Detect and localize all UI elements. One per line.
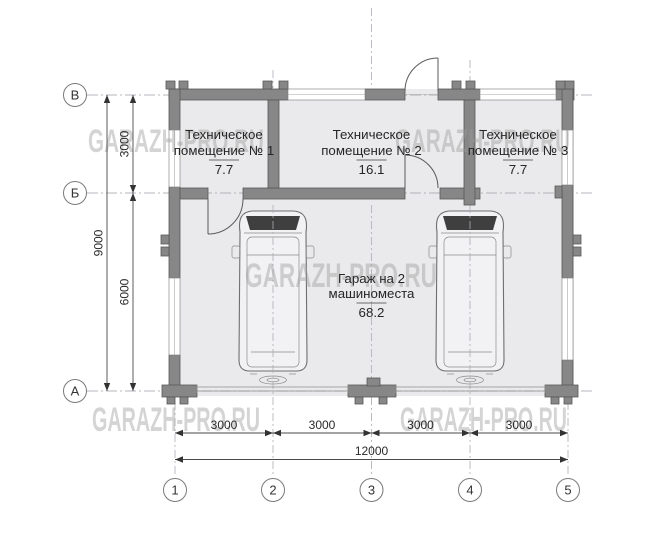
floor-plan-page: GARAZH-PRO.RU GARAZH-PRO.RU GARAZH-PRO.R… bbox=[0, 0, 661, 560]
room-tech2-area: 16.1 bbox=[359, 162, 385, 177]
grid-marker-col-5-label: 5 bbox=[564, 483, 571, 498]
wall-right-2 bbox=[562, 185, 573, 278]
dim-bottom-seg4-label: 3000 bbox=[506, 418, 533, 432]
dim-bottom-seg1-label: 3000 bbox=[211, 418, 238, 432]
room-garage-name-line2: машиноместа bbox=[329, 286, 415, 301]
grid-marker-row-v-label: В bbox=[71, 88, 80, 103]
wall-top-2 bbox=[365, 89, 405, 100]
grid-marker-col-3-label: 3 bbox=[368, 483, 375, 498]
grid-marker-col-1-label: 1 bbox=[171, 483, 178, 498]
wall-b-2 bbox=[243, 188, 405, 199]
dim-left-bottom-label: 6000 bbox=[118, 278, 132, 305]
room-tech1-area: 7.7 bbox=[215, 162, 234, 177]
grid-marker-col-3: 3 bbox=[360, 479, 383, 502]
dim-bottom-seg2-label: 3000 bbox=[309, 418, 336, 432]
grid-marker-col-2: 2 bbox=[262, 479, 285, 502]
grid-marker-row-a: А bbox=[64, 380, 87, 403]
room-tech1-name-line2: помещение № 1 bbox=[174, 143, 275, 158]
grid-marker-row-b-label: Б bbox=[71, 186, 80, 201]
grid-marker-col-5: 5 bbox=[557, 479, 580, 502]
room-tech3-name-line1: Техническое bbox=[479, 127, 557, 142]
room-tech2-name-line1: Техническое bbox=[333, 127, 411, 142]
dim-left-top-label: 3000 bbox=[118, 130, 132, 157]
dim-left-overall-label: 9000 bbox=[92, 229, 106, 256]
wall-top-3 bbox=[438, 89, 480, 100]
grid-marker-col-2-label: 2 bbox=[269, 483, 276, 498]
grid-marker-row-b: Б bbox=[64, 182, 87, 205]
wall-left-2 bbox=[169, 187, 180, 278]
dim-bottom-seg3-label: 3000 bbox=[407, 418, 434, 432]
grid-marker-col-4-label: 4 bbox=[466, 483, 473, 498]
floor-plan-drawing: GARAZH-PRO.RU GARAZH-PRO.RU GARAZH-PRO.R… bbox=[0, 0, 661, 560]
grid-markers-rows: В Б А bbox=[64, 84, 87, 403]
pier-bottom-right bbox=[545, 385, 578, 397]
wall-right-pier-b bbox=[555, 186, 562, 198]
wall-top-1 bbox=[169, 89, 288, 100]
room-tech2-name-line2: помещение № 2 bbox=[321, 143, 422, 158]
grid-marker-col-1: 1 bbox=[164, 479, 187, 502]
room-tech3-area: 7.7 bbox=[509, 162, 528, 177]
dim-bottom-overall-label: 12000 bbox=[355, 444, 389, 458]
grid-marker-row-a-label: А bbox=[71, 384, 80, 399]
pier-bottom-left bbox=[162, 385, 197, 397]
pier-bottom-middle-tab bbox=[367, 378, 380, 386]
pier-bottom-middle bbox=[348, 385, 396, 397]
room-tech1-name-line1: Техническое bbox=[185, 127, 263, 142]
room-tech3-name-line2: помещение № 3 bbox=[468, 143, 569, 158]
grid-marker-row-v: В bbox=[64, 84, 87, 107]
room-garage-area: 68.2 bbox=[359, 305, 385, 320]
grid-markers-cols: 1 2 3 4 5 bbox=[164, 479, 580, 502]
wall-b-1 bbox=[180, 188, 208, 199]
grid-marker-col-4: 4 bbox=[459, 479, 482, 502]
room-garage-name-line1: Гараж на 2 bbox=[338, 271, 405, 286]
